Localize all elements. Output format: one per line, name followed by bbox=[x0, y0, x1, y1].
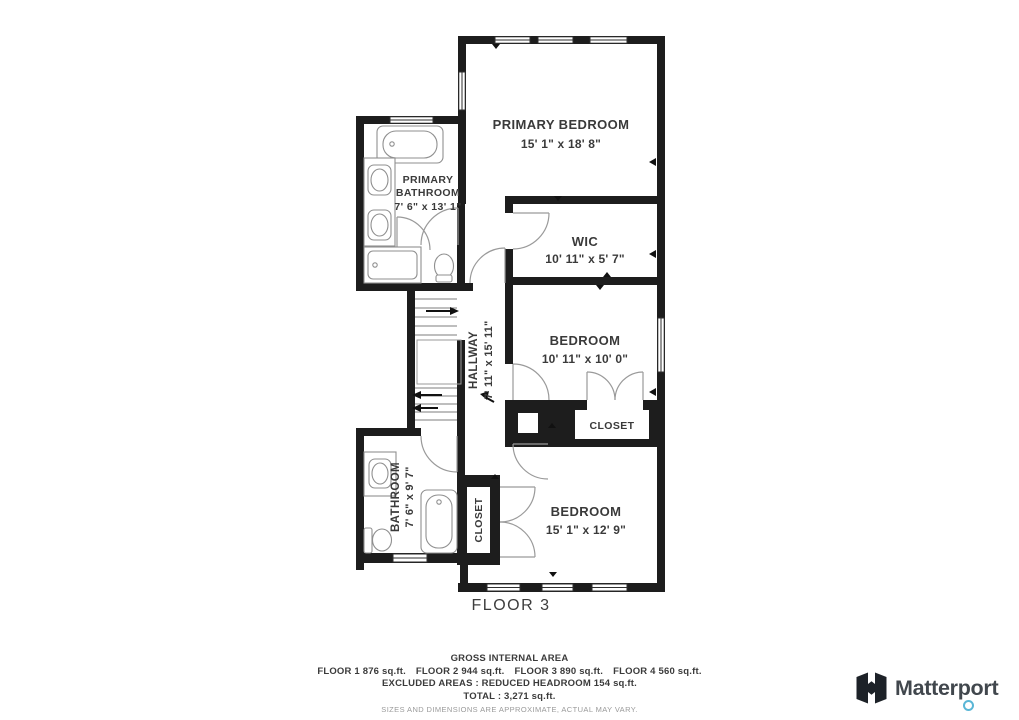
window bbox=[590, 37, 627, 43]
floor2-area: FLOOR 2 944 sq.ft. bbox=[416, 666, 505, 677]
matterport-logo: Matterport bbox=[856, 672, 998, 704]
window bbox=[495, 37, 530, 43]
window bbox=[592, 584, 627, 591]
matterport-wordmark: Matterport bbox=[895, 676, 998, 701]
bedroom-bottom-dims: 15' 1" x 12' 9" bbox=[546, 523, 626, 537]
primary-bathroom-label2: BATHROOM bbox=[396, 187, 460, 199]
wic-dims: 10' 11" x 5' 7" bbox=[545, 252, 624, 266]
closet-mid-label: CLOSET bbox=[590, 420, 635, 432]
vanity-sinks bbox=[364, 158, 395, 246]
closet-bottom-label: CLOSET bbox=[473, 497, 485, 542]
floor4-area: FLOOR 4 560 sq.ft. bbox=[613, 666, 702, 677]
primary-bathroom-dims: 7' 6" x 13' 1" bbox=[394, 201, 461, 213]
window bbox=[542, 584, 573, 591]
bathtub bbox=[377, 126, 443, 163]
door-swing bbox=[421, 208, 458, 245]
floor1-area: FLOOR 1 876 sq.ft. bbox=[317, 666, 406, 677]
shower bbox=[364, 247, 421, 283]
door-swing bbox=[513, 213, 549, 249]
door-swing bbox=[513, 364, 549, 400]
gross-internal-area-title: GROSS INTERNAL AREA bbox=[0, 653, 1019, 666]
bathroom-dims: 7' 6" x 9' 7" bbox=[404, 466, 416, 527]
door-swing bbox=[421, 436, 457, 472]
bedroom-mid-label: BEDROOM bbox=[550, 333, 621, 348]
door-swing bbox=[500, 522, 535, 557]
matterport-m-icon bbox=[856, 672, 887, 704]
door-swing bbox=[500, 487, 535, 522]
floor3-area: FLOOR 3 890 sq.ft. bbox=[515, 666, 604, 677]
bathtub bbox=[421, 490, 457, 553]
window bbox=[393, 554, 427, 562]
window bbox=[390, 117, 433, 123]
window bbox=[487, 584, 520, 591]
window bbox=[658, 318, 664, 372]
hallway-dims: 7' 11" x 15' 11" bbox=[483, 321, 495, 400]
toilet bbox=[364, 528, 392, 553]
window bbox=[459, 72, 465, 110]
bedroom-bottom-label: BEDROOM bbox=[551, 504, 622, 519]
bedroom-mid-dims: 10' 11" x 10' 0" bbox=[542, 352, 628, 366]
primary-bedroom-dims: 15' 1" x 18' 8" bbox=[521, 137, 601, 151]
floor-title: FLOOR 3 bbox=[472, 597, 551, 614]
door-swing bbox=[513, 444, 548, 479]
wic-label: WIC bbox=[572, 234, 599, 249]
primary-bedroom-label: PRIMARY BEDROOM bbox=[493, 117, 630, 132]
window bbox=[538, 37, 573, 43]
floor-plan-drawing: PRIMARY BEDROOM 15' 1" x 18' 8" PRIMARY … bbox=[0, 0, 1019, 720]
primary-bathroom-label1: PRIMARY bbox=[403, 174, 454, 186]
staircase bbox=[415, 299, 461, 420]
disclaimer-text: SIZES AND DIMENSIONS ARE APPROXIMATE, AC… bbox=[0, 705, 1019, 714]
toilet bbox=[435, 254, 454, 282]
logo-blue-ring bbox=[963, 700, 974, 711]
door-swing bbox=[397, 217, 430, 250]
door-swing bbox=[587, 372, 615, 400]
bathroom-label: BATHROOM bbox=[390, 462, 402, 532]
floor-plan-page: PRIMARY BEDROOM 15' 1" x 18' 8" PRIMARY … bbox=[0, 0, 1019, 720]
door-swing bbox=[615, 372, 643, 400]
hallway-label: HALLWAY bbox=[468, 331, 480, 389]
door-swing bbox=[470, 248, 505, 283]
